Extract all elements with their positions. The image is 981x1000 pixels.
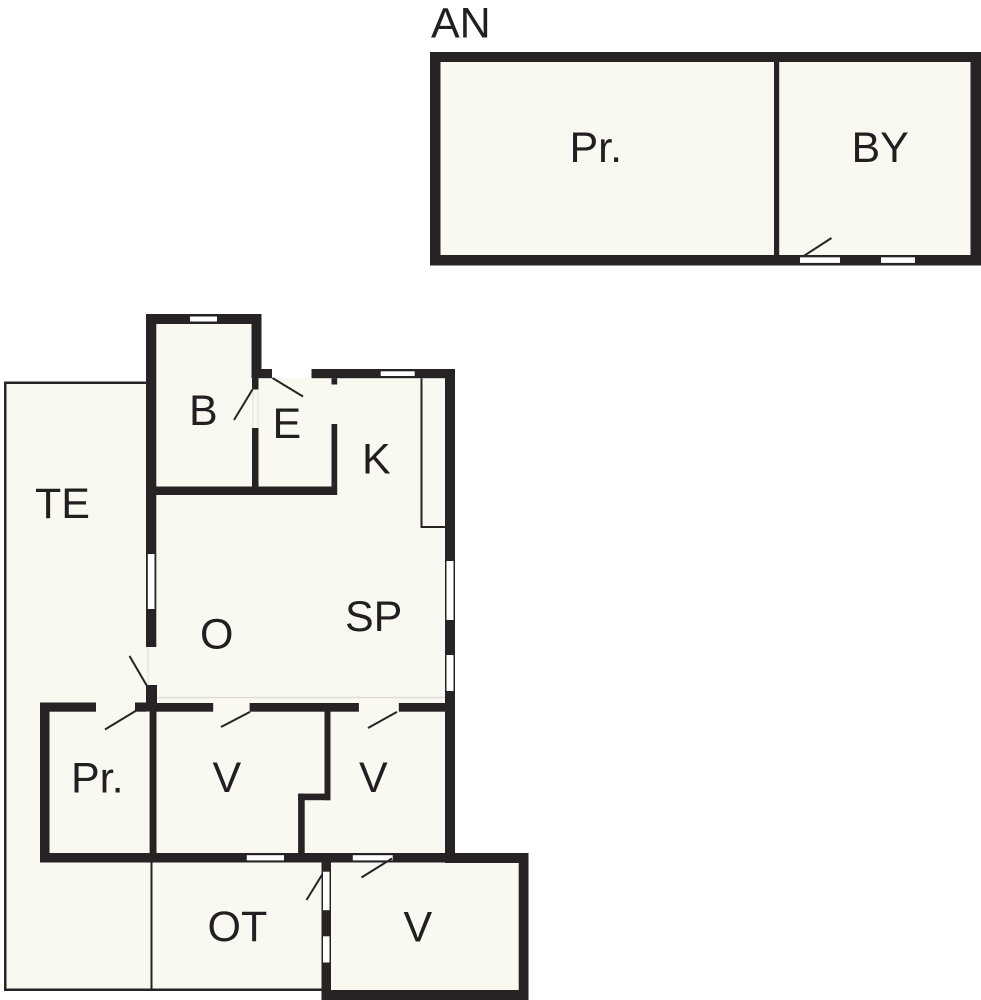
svg-text:Pr.: Pr. (71, 755, 124, 803)
svg-text:Pr.: Pr. (570, 124, 623, 172)
svg-text:K: K (362, 436, 391, 484)
svg-text:SP: SP (345, 593, 402, 641)
svg-text:V: V (404, 904, 433, 952)
svg-text:AN: AN (431, 0, 491, 48)
svg-text:E: E (273, 400, 302, 448)
svg-text:BY: BY (852, 124, 909, 172)
svg-text:V: V (213, 754, 242, 802)
svg-text:V: V (359, 754, 388, 802)
svg-text:TE: TE (35, 480, 90, 528)
svg-text:O: O (200, 611, 233, 659)
svg-text:OT: OT (208, 903, 268, 951)
svg-text:B: B (189, 387, 218, 435)
